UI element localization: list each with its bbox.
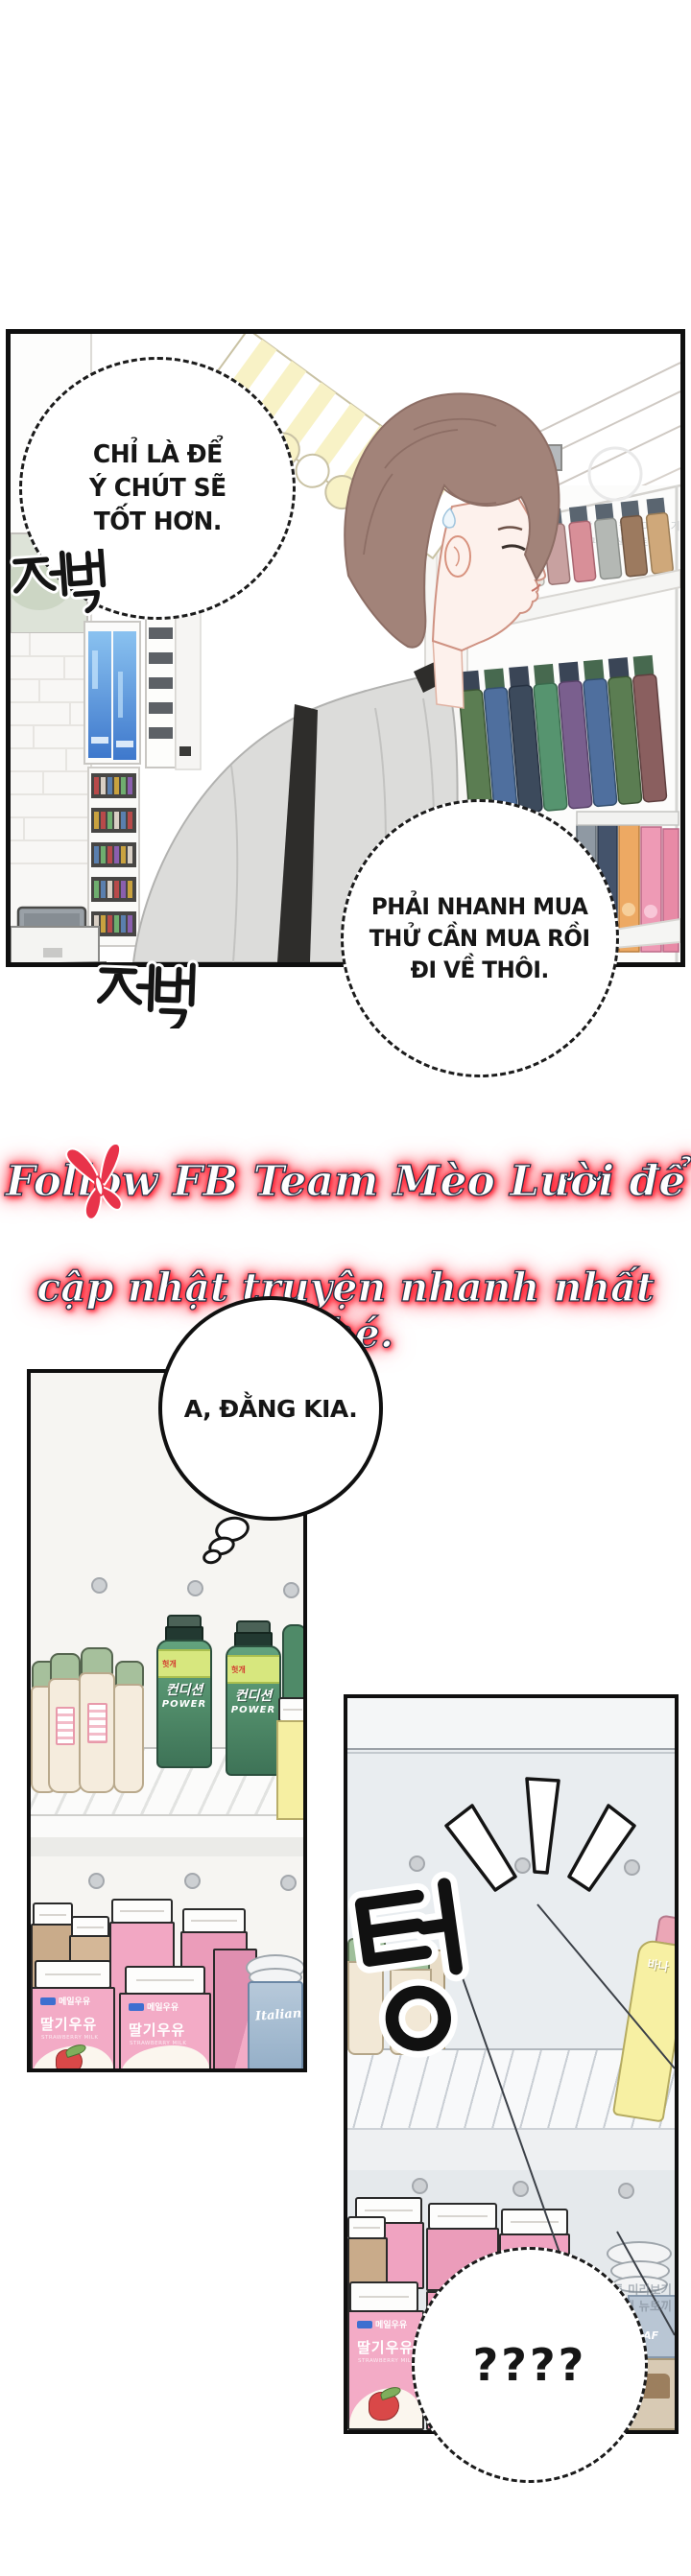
thought-bubble-2: PHẢI NHANH MUA THỬ CẦN MUA RỒI ĐI VỀ THÔ… (341, 799, 619, 1077)
bottle-label-band: 헛개 (227, 1655, 279, 1684)
bubble1-line1: CHỈ LÀ ĐỂ (89, 438, 226, 472)
carton-flap (182, 1908, 246, 1933)
butterfly-icon (59, 1135, 139, 1227)
bubble1-line3: TỐT HƠN. (89, 506, 226, 539)
milk-sub-text: STRAWBERRY MILK (41, 2035, 113, 2041)
carton-front: 메일우유 딸기우유 STRAWBERRY MILK (31, 1987, 115, 2072)
milk-brand-text: 메일우유 (147, 2000, 179, 2013)
condition-drink-bottle: 헛개 컨디션 POWER (156, 1615, 212, 1768)
bubble2-line1: PHẢI NHANH MUA (369, 891, 590, 923)
sfx-footsteps-1: 저벅 (8, 549, 113, 616)
condition-drink-bottle: 헛개 컨디션 POWER (226, 1620, 281, 1776)
milk-splash-art (121, 2045, 209, 2072)
italian-cup-text: Italian (255, 2006, 302, 2023)
manhwa-page: 가장 빠른 웹툰 미리보기 구글검색 뉴토끼 (0, 0, 691, 2576)
emphasis-marks (446, 1779, 634, 1890)
condition-name-text: 컨디션 (227, 1686, 279, 1705)
sfx-empty-art (361, 1884, 466, 2049)
strawberry-milk-carton: 메일우유 딸기우유 STRAWBERRY MILK (31, 1960, 115, 2072)
italian-cup: Italian (246, 1954, 305, 2072)
milk-name-text: 딸기우유 (40, 2014, 113, 2034)
yogurt-label (87, 1703, 107, 1743)
carton-gable (35, 1960, 111, 1989)
yogurt-body (79, 1672, 115, 1793)
yogurt-label (56, 1707, 75, 1745)
carton-gable (125, 1966, 205, 1995)
sfx-footsteps-1-art (8, 549, 113, 616)
fridge-shelf-shadow (31, 1837, 303, 1856)
yogurt-body (113, 1684, 144, 1793)
condition-name-text: 컨디션 (158, 1680, 210, 1699)
banana-carton-flap (278, 1697, 307, 1722)
milk-name-text: 딸기우유 (129, 2020, 209, 2040)
bubble2-line3: ĐI VỀ THÔI. (369, 955, 590, 986)
maeil-logo-pill (129, 2003, 144, 2011)
fridge-wall-hole (283, 1582, 299, 1598)
fridge-wall-hole (88, 1873, 105, 1889)
fridge-shelf-lip (31, 1814, 303, 1839)
character-ear (445, 536, 470, 577)
sfx-footsteps-2: 저벅 (94, 957, 205, 1028)
fridge-wall-hole (187, 1580, 203, 1596)
bubble3-line1: A, ĐẰNG KIA. (184, 1395, 357, 1423)
thought-bubble-3: A, ĐẰNG KIA. (158, 1296, 383, 1521)
strawberry-milk-carton: 메일우유 딸기우유 STRAWBERRY MILK (119, 1966, 211, 2072)
carton-front: 메일우유 딸기우유 STRAWBERRY MILK (119, 1993, 211, 2072)
fridge-wall-hole (280, 1875, 297, 1891)
door-posters (84, 622, 140, 764)
fridge-wall-hole (184, 1873, 201, 1889)
condition-sub-text: POWER (227, 1705, 279, 1715)
sfx-footsteps-2-art (94, 957, 205, 1028)
bottle-body: 헛개 컨디션 POWER (156, 1640, 212, 1768)
thought-bubble-4: ???? (412, 2247, 648, 2483)
cup-body: Italian (248, 1981, 303, 2072)
yogurt-body (48, 1678, 83, 1793)
condition-sub-text: POWER (158, 1699, 210, 1710)
carton-flap (111, 1899, 173, 1924)
goods-shelf (88, 768, 139, 946)
condition-accent-text: 헛개 (162, 1659, 177, 1669)
milk-brand-text: 메일우유 (59, 1995, 90, 2007)
fridge-wall-hole (91, 1577, 107, 1594)
bottle-body: 헛개 컨디션 POWER (226, 1645, 281, 1776)
bubble4-line1: ???? (473, 2339, 587, 2391)
bubble2-line2: THỬ CẦN MUA RỒI (369, 923, 590, 955)
maeil-logo-pill (40, 1997, 56, 2005)
bottle-label-band: 헛개 (158, 1649, 210, 1678)
bubble1-line2: Ý CHÚT SẼ (89, 472, 226, 506)
banana-carton-body (276, 1720, 307, 1820)
condition-accent-text: 헛개 (231, 1665, 246, 1675)
